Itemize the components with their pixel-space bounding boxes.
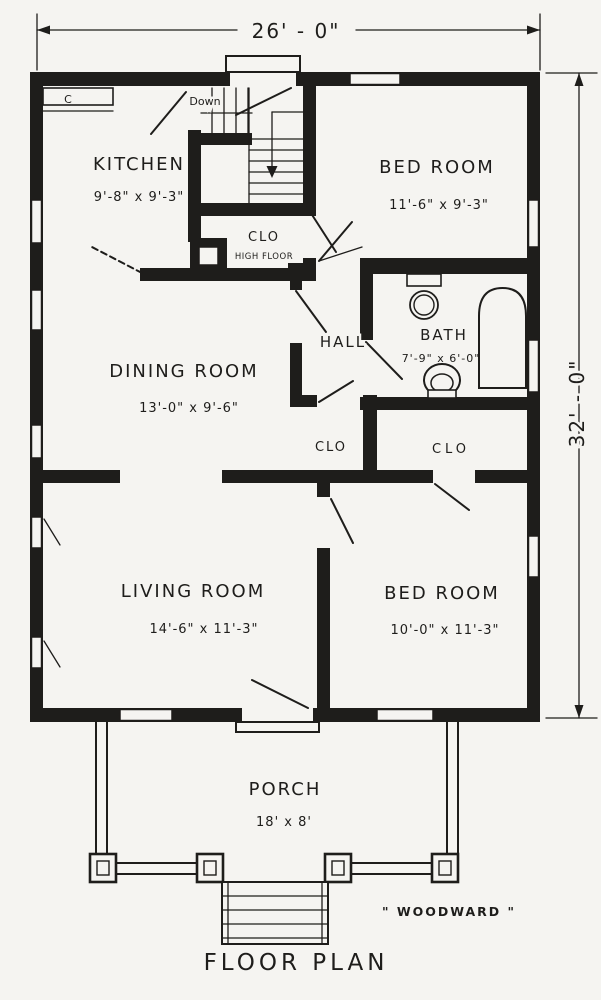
- bedroom-closet-label: CLO: [432, 442, 470, 457]
- wall-living-bedroom: [317, 548, 330, 708]
- wall-divider-mid: [222, 470, 433, 483]
- hall-closet-label: CLO: [315, 440, 347, 455]
- window-front-living: [120, 710, 172, 721]
- window-left-living-2: [32, 637, 42, 668]
- porch-steps: [222, 882, 328, 944]
- bath-label: BATH: [420, 326, 468, 344]
- floor-plan-drawing: 26' - 0" 32' - 0": [0, 0, 601, 1000]
- wall-bath-bottom: [360, 397, 527, 410]
- wall-kitchen-right: [188, 130, 201, 242]
- bath-size: 7'-9" x 6'-0": [402, 352, 481, 365]
- wall-hallclo-top: [290, 395, 317, 407]
- stairs-down-label: Down: [189, 95, 220, 108]
- kitchen-size: 9'-8" x 9'-3": [94, 190, 185, 205]
- window-left-living-1: [32, 517, 42, 548]
- bedroom2-label: BED ROOM: [384, 583, 500, 604]
- bedroom1-label: BED ROOM: [379, 157, 495, 178]
- porch-size: 18' x 8': [256, 815, 312, 830]
- living-label: LIVING ROOM: [121, 581, 265, 602]
- window-right-bedroom2: [529, 536, 539, 577]
- architect-signature: " WOODWARD ": [382, 904, 516, 919]
- window-right-bedroom1: [529, 200, 539, 247]
- window-left-kitchen: [32, 200, 42, 243]
- wall-divider-left: [43, 470, 120, 483]
- rear-door-step: [226, 56, 300, 72]
- front-door-threshold: [236, 722, 319, 732]
- bedroom1-size: 11'-6" x 9'-3": [389, 198, 489, 213]
- depth-dimension-label: 32' - 0": [565, 359, 589, 448]
- porch-post-left: [90, 854, 116, 882]
- wall-living-bedroom-stub: [317, 483, 330, 497]
- porch-post-steps-left: [197, 854, 223, 882]
- porch-post-right: [432, 854, 458, 882]
- wall-divider-right: [475, 470, 527, 483]
- rear-door-opening: [230, 71, 296, 87]
- floor-plan-sheet: 26' - 0" 32' - 0": [0, 0, 601, 1000]
- wall-stair-bedroom: [303, 86, 316, 203]
- wall-stair-mid: [188, 133, 252, 145]
- wall-stair-bottom: [188, 203, 316, 216]
- bedroom2-size: 10'-0" x 11'-3": [390, 623, 499, 638]
- window-right-bath: [529, 340, 539, 392]
- porch-label: PORCH: [249, 779, 322, 800]
- dining-label: DINING ROOM: [109, 361, 258, 382]
- living-size: 14'-6" x 11'-3": [149, 622, 258, 637]
- dining-size: 13'-0" x 9'-6": [139, 401, 239, 416]
- wall-bedroom1-bath: [360, 258, 527, 274]
- cabinet-label: C: [64, 93, 72, 106]
- wall-hall-left-a: [290, 263, 302, 290]
- front-door-opening: [242, 707, 313, 723]
- porch-post-steps-right: [325, 854, 351, 882]
- hall-label: HALL: [320, 333, 366, 351]
- chimney: [190, 238, 227, 274]
- kitchen-label: KITCHEN: [93, 154, 185, 175]
- window-front-bedroom: [377, 710, 433, 721]
- window-left-dining-2: [32, 425, 42, 458]
- window-left-dining-1: [32, 290, 42, 330]
- wall-bath-left: [360, 274, 373, 340]
- stair-closet-label: CLO: [248, 230, 280, 245]
- width-dimension-label: 26' - 0": [252, 19, 341, 43]
- window-top-bedroom: [350, 74, 400, 85]
- drawing-title: FLOOR PLAN: [204, 950, 389, 976]
- stair-closet-note: HIGH FLOOR: [235, 252, 293, 262]
